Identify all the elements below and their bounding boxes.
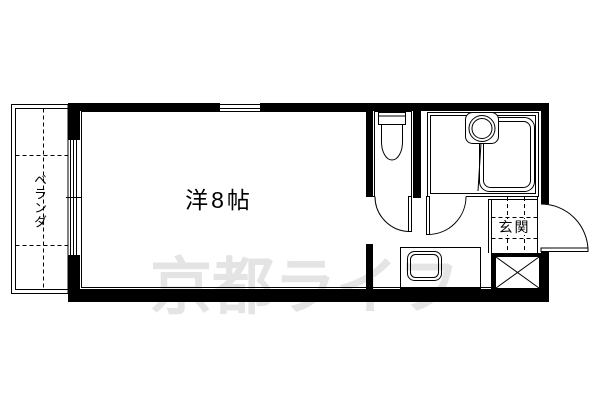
left-wall-upper <box>68 103 80 140</box>
kitchen-sink-icon <box>408 252 442 281</box>
toilet-left-wall <box>366 110 373 197</box>
door-leaf <box>409 197 412 232</box>
main-room-label: 洋8帖 <box>158 181 280 215</box>
toilet-door <box>375 197 412 232</box>
door-leaf <box>541 248 588 252</box>
toilet-bath-divider-wall <box>413 111 421 198</box>
entrance-label: 玄関 <box>493 219 536 235</box>
washbasin-icon <box>466 113 499 144</box>
door-swing-arc <box>375 197 410 232</box>
toilet-icon <box>379 113 406 161</box>
balcony-label: ベランダ <box>31 166 49 236</box>
left-wall-lower <box>68 255 80 302</box>
top-wall-right <box>260 103 549 111</box>
floorplan-canvas: 京都ライフ <box>0 0 600 400</box>
entrance-door <box>541 204 588 252</box>
passage-wall-stub <box>366 244 373 290</box>
kitchen-counter <box>401 248 481 289</box>
door-swing-arc <box>428 197 466 235</box>
floorplan-drawing <box>0 0 600 400</box>
door-leaf <box>427 197 430 235</box>
right-wall-upper <box>541 103 549 204</box>
pipe-space-x-icon <box>491 253 549 293</box>
bottom-wall <box>68 289 549 302</box>
top-wall-left <box>68 103 220 111</box>
top-window <box>220 105 260 109</box>
door-swing-arc <box>541 204 588 251</box>
bath-door <box>427 197 467 235</box>
